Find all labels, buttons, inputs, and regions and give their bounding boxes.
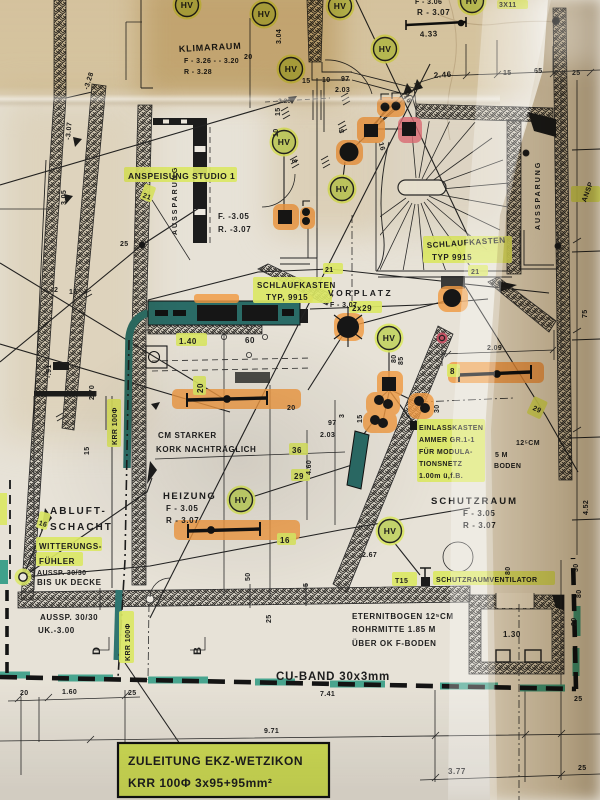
svg-text:F. -3.05: F. -3.05	[218, 212, 249, 221]
svg-text:3X11: 3X11	[499, 2, 517, 9]
svg-text:21: 21	[325, 267, 334, 274]
svg-text:VORPLATZ: VORPLATZ	[328, 288, 393, 298]
svg-text:HV: HV	[379, 44, 391, 54]
svg-text:3: 3	[339, 414, 346, 418]
svg-text:F - 3.05: F - 3.05	[463, 509, 495, 518]
svg-text:21: 21	[471, 269, 480, 276]
svg-text:F - 3.05: F - 3.05	[166, 504, 198, 513]
svg-text:ETERNITBOGEN 12⁵CM: ETERNITBOGEN 12⁵CM	[352, 612, 454, 621]
svg-text:3.04: 3.04	[276, 29, 283, 44]
svg-text:ROHRMITTE 1.85 M: ROHRMITTE 1.85 M	[352, 625, 436, 634]
svg-text:ABLUFT-: ABLUFT-	[50, 506, 107, 517]
svg-text:KLIMARAUM: KLIMARAUM	[179, 41, 242, 54]
svg-text:10: 10	[322, 77, 331, 84]
svg-text:TIONSNETZ: TIONSNETZ	[419, 461, 463, 468]
svg-text:2: 2	[54, 287, 58, 294]
svg-text:7.41: 7.41	[320, 691, 335, 698]
svg-text:D: D	[91, 647, 103, 655]
svg-text:15: 15	[302, 78, 311, 85]
svg-text:25: 25	[578, 765, 587, 772]
svg-text:1.00m ü,f.B.: 1.00m ü,f.B.	[419, 473, 463, 480]
svg-text:25: 25	[266, 614, 273, 623]
svg-text:80: 80	[391, 354, 398, 363]
svg-text:3.77: 3.77	[448, 767, 466, 776]
svg-text:75: 75	[582, 309, 589, 318]
svg-text:BIS UK DECKE: BIS UK DECKE	[37, 578, 102, 587]
svg-text:65: 65	[534, 68, 543, 75]
svg-text:97: 97	[341, 76, 350, 83]
svg-text:20: 20	[571, 617, 578, 626]
svg-text:SCHUTZRAUM: SCHUTZRAUM	[431, 496, 518, 507]
svg-text:25: 25	[120, 241, 129, 248]
svg-text:1.30: 1.30	[503, 630, 521, 639]
svg-text:HV: HV	[466, 0, 478, 6]
svg-text:2.09: 2.09	[487, 345, 502, 352]
svg-text:R. -3.07: R. -3.07	[218, 225, 251, 234]
svg-text:80: 80	[505, 566, 512, 575]
svg-text:HV: HV	[334, 1, 346, 11]
svg-text:3.05: 3.05	[61, 190, 68, 205]
svg-text:5 M: 5 M	[495, 452, 508, 459]
svg-text:FÜR MODULA-: FÜR MODULA-	[419, 447, 473, 456]
svg-text:AUSSP. 30/30: AUSSP. 30/30	[37, 570, 86, 577]
svg-text:HV: HV	[181, 0, 193, 10]
svg-text:9.71: 9.71	[264, 728, 279, 735]
svg-text:R - 3.07: R - 3.07	[417, 8, 450, 17]
svg-text:16: 16	[69, 289, 78, 296]
svg-text:WITTERUNGS-: WITTERUNGS-	[39, 542, 102, 551]
svg-text:30: 30	[573, 563, 580, 572]
svg-text:CM STARKER: CM STARKER	[158, 431, 217, 440]
svg-text:TYP 9915: TYP 9915	[432, 253, 472, 262]
svg-text:HV: HV	[384, 526, 396, 536]
svg-text:12⁵CM: 12⁵CM	[516, 440, 540, 447]
svg-text:CU-BAND 30x3mm: CU-BAND 30x3mm	[276, 671, 390, 683]
svg-text:F - 3.06: F - 3.06	[415, 0, 442, 6]
svg-text:20: 20	[287, 405, 296, 412]
svg-text:36: 36	[292, 446, 302, 455]
svg-text:60: 60	[245, 336, 255, 345]
svg-text:HV: HV	[383, 333, 395, 343]
svg-text:R - 3.07: R - 3.07	[463, 521, 496, 530]
svg-text:4.33: 4.33	[420, 29, 438, 39]
svg-text:3: 3	[292, 159, 299, 163]
svg-text:16: 16	[280, 536, 290, 545]
svg-text:25: 25	[128, 690, 137, 697]
svg-text:15: 15	[357, 414, 364, 423]
svg-text:80: 80	[576, 589, 583, 598]
svg-text:1.60: 1.60	[62, 689, 77, 696]
svg-text:T15: T15	[395, 578, 408, 585]
svg-text:2x29: 2x29	[352, 304, 372, 313]
svg-text:29: 29	[294, 472, 304, 481]
svg-text:1.40: 1.40	[179, 337, 197, 346]
svg-text:SCHACHT: SCHACHT	[50, 522, 113, 533]
svg-text:AUSSPARUNG: AUSSPARUNG	[535, 161, 542, 230]
svg-text:EINLASSKASTEN: EINLASSKASTEN	[419, 425, 483, 432]
svg-text:-3.07: -3.07	[65, 122, 74, 141]
svg-text:HV: HV	[278, 137, 290, 147]
svg-text:2.67: 2.67	[362, 552, 377, 559]
svg-text:KRR 100Φ: KRR 100Φ	[125, 623, 132, 661]
svg-text:2.46: 2.46	[434, 70, 453, 80]
svg-text:UK.-3.00: UK.-3.00	[38, 626, 75, 635]
svg-text:16: 16	[377, 142, 386, 152]
svg-text:25: 25	[572, 70, 581, 77]
svg-text:R - 3.07: R - 3.07	[166, 516, 199, 525]
svg-text:15: 15	[503, 70, 512, 77]
svg-text:4.60: 4.60	[306, 460, 313, 475]
svg-text:-.91: -.91	[46, 364, 53, 378]
svg-text:B: B	[192, 647, 204, 655]
svg-text:2.03: 2.03	[335, 87, 350, 94]
svg-text:15: 15	[84, 446, 91, 455]
svg-text:10: 10	[273, 128, 280, 137]
svg-text:20: 20	[196, 383, 205, 393]
svg-text:30: 30	[434, 404, 441, 413]
svg-text:AMMER GR.1-1: AMMER GR.1-1	[419, 437, 475, 444]
svg-text:FÜHLER: FÜHLER	[39, 557, 75, 566]
svg-text:R - 3.28: R - 3.28	[184, 69, 212, 76]
svg-text:BODEN: BODEN	[494, 463, 521, 470]
svg-text:ÜBER OK F-BODEN: ÜBER OK F-BODEN	[352, 639, 437, 648]
svg-text:KORK NACHTRÄGLICH: KORK NACHTRÄGLICH	[156, 445, 256, 454]
svg-text:2.70: 2.70	[89, 385, 96, 400]
svg-text:KRR 100Φ 3x95+95mm²: KRR 100Φ 3x95+95mm²	[128, 776, 272, 790]
svg-text:4.52: 4.52	[583, 500, 590, 515]
svg-text:2.03: 2.03	[320, 432, 335, 439]
svg-text:SCHUTZRAUMVENTILATOR: SCHUTZRAUMVENTILATOR	[436, 577, 537, 584]
svg-text:25: 25	[574, 696, 583, 703]
svg-text:20: 20	[20, 690, 29, 697]
svg-text:F - 3.26 - - 3.20: F - 3.26 - - 3.20	[184, 58, 239, 65]
svg-text:TYP, 9915: TYP, 9915	[266, 293, 308, 302]
svg-text:ANSPEISUNG STUDIO 1: ANSPEISUNG STUDIO 1	[128, 171, 235, 181]
svg-text:8: 8	[450, 367, 455, 376]
svg-text:97: 97	[328, 420, 337, 427]
svg-text:-3.20-: -3.20-	[276, 98, 293, 105]
svg-text:HV: HV	[336, 184, 348, 194]
svg-text:50: 50	[245, 572, 252, 581]
svg-text:HEIZUNG: HEIZUNG	[163, 491, 216, 502]
svg-text:15: 15	[275, 107, 282, 116]
svg-text:KRR 100Φ: KRR 100Φ	[112, 407, 119, 445]
svg-text:HV: HV	[235, 495, 247, 505]
svg-text:SCHLAUFKASTEN: SCHLAUFKASTEN	[257, 281, 336, 290]
svg-text:85: 85	[398, 356, 405, 365]
svg-text:HV: HV	[258, 9, 270, 19]
svg-text:ZULEITUNG EKZ-WETZIKON: ZULEITUNG EKZ-WETZIKON	[128, 754, 303, 768]
svg-text:AUSSP. 30/30: AUSSP. 30/30	[40, 613, 98, 622]
svg-text:HV: HV	[285, 64, 297, 74]
svg-text:20: 20	[244, 54, 253, 61]
svg-text:5: 5	[339, 129, 346, 133]
svg-text:5: 5	[303, 583, 310, 587]
